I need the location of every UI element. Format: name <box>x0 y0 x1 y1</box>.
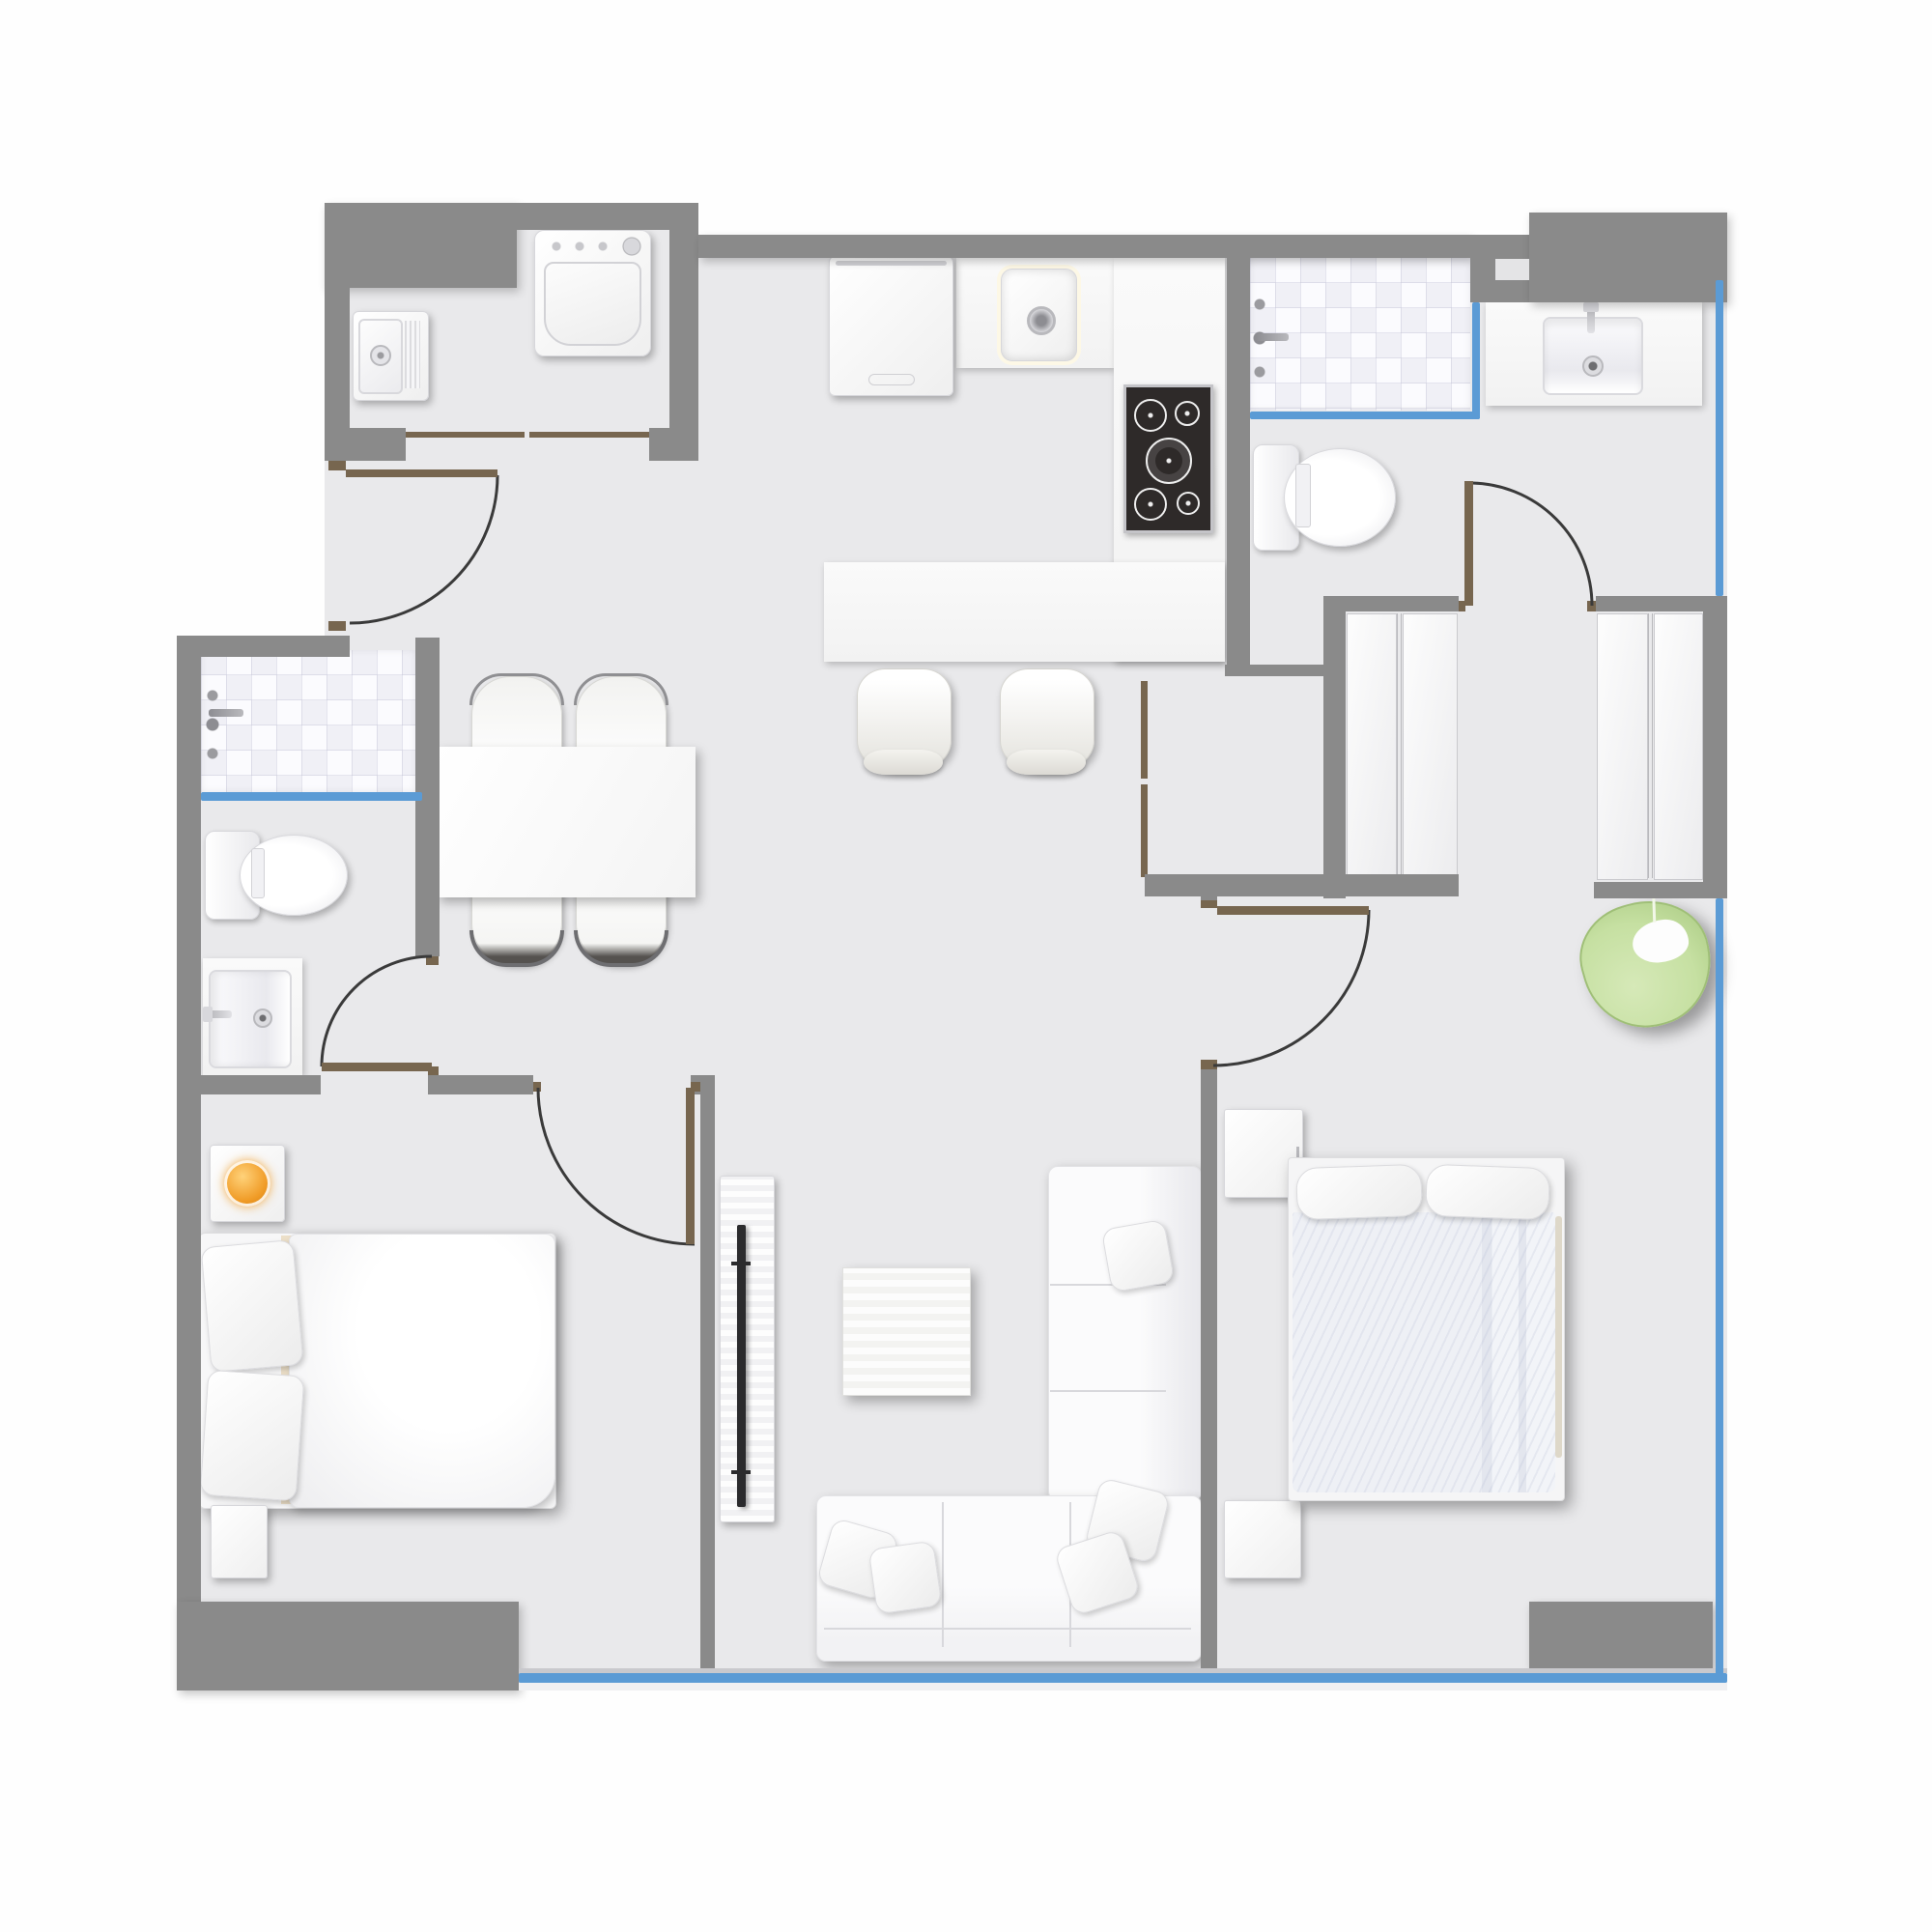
bath2-door-leaf <box>322 1063 432 1071</box>
bedroom2-door-leaf <box>1217 906 1369 915</box>
floor-plan <box>0 0 1932 1932</box>
bedroom1-door-arc <box>538 1088 695 1244</box>
entry-door-arc <box>350 475 497 623</box>
hall-door-leaf <box>1464 481 1473 606</box>
door-swings <box>0 0 1932 1932</box>
bath2-door-arc <box>322 956 432 1066</box>
bedroom2-door-arc <box>1213 910 1369 1065</box>
hall-door-arc <box>1469 483 1592 606</box>
entry-door-leaf <box>346 469 497 477</box>
bedroom1-door-leaf <box>686 1088 695 1244</box>
